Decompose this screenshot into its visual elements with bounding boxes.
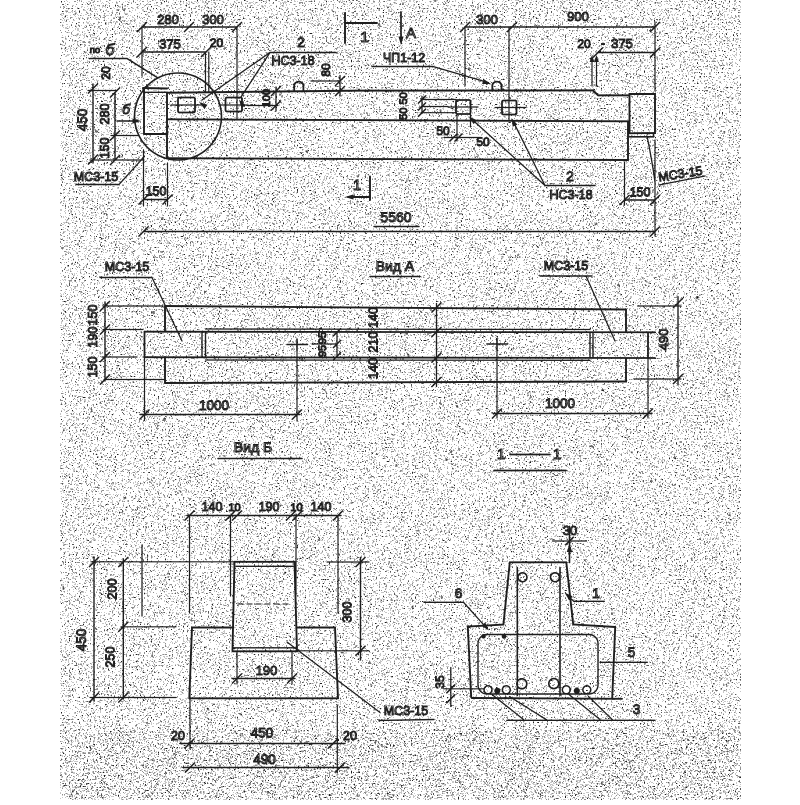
- svg-text:450: 450: [74, 629, 89, 652]
- svg-text:1: 1: [353, 177, 361, 194]
- svg-text:10: 10: [228, 502, 240, 514]
- svg-text:140: 140: [367, 358, 381, 379]
- svg-text:10: 10: [290, 502, 302, 514]
- svg-text:190: 190: [86, 327, 100, 348]
- svg-text:150: 150: [98, 138, 112, 159]
- svg-text:6: 6: [455, 586, 463, 601]
- svg-text:300: 300: [476, 12, 498, 27]
- svg-text:Вид А: Вид А: [376, 258, 415, 274]
- svg-text:50: 50: [436, 124, 450, 138]
- svg-text:1000: 1000: [199, 398, 229, 413]
- svg-text:1: 1: [360, 29, 368, 46]
- svg-text:150: 150: [630, 186, 651, 200]
- svg-text:250: 250: [104, 647, 118, 668]
- svg-text:80: 80: [319, 63, 333, 77]
- svg-text:б: б: [122, 101, 131, 117]
- svg-text:3: 3: [633, 702, 641, 717]
- svg-text:375: 375: [159, 37, 181, 52]
- svg-text:95: 95: [317, 332, 329, 344]
- svg-text:280: 280: [157, 12, 179, 27]
- svg-text:490: 490: [656, 329, 671, 351]
- svg-text:1000: 1000: [545, 396, 575, 411]
- svg-text:20: 20: [343, 729, 357, 743]
- svg-text:5560: 5560: [380, 209, 411, 225]
- svg-text:1: 1: [553, 446, 561, 463]
- svg-text:2: 2: [566, 168, 574, 184]
- svg-text:МС3-15: МС3-15: [544, 259, 589, 273]
- svg-text:5: 5: [628, 645, 636, 660]
- svg-text:450: 450: [75, 109, 90, 132]
- svg-text:150: 150: [146, 185, 167, 199]
- svg-text:100: 100: [261, 89, 273, 107]
- svg-text:450: 450: [251, 726, 274, 741]
- svg-text:МС3-15: МС3-15: [105, 260, 150, 274]
- svg-text:20: 20: [577, 37, 591, 51]
- svg-text:50: 50: [476, 135, 490, 149]
- svg-text:-: -: [601, 36, 605, 50]
- svg-text:900: 900: [567, 9, 589, 24]
- svg-text:А: А: [406, 25, 416, 42]
- svg-text:НС3-18: НС3-18: [271, 54, 314, 68]
- svg-text:95: 95: [317, 345, 329, 357]
- svg-text:375: 375: [611, 36, 633, 51]
- svg-text:210: 210: [367, 332, 381, 353]
- svg-text:140: 140: [367, 307, 381, 328]
- svg-text:490: 490: [253, 752, 276, 767]
- svg-text:200: 200: [106, 579, 120, 600]
- svg-text:300: 300: [202, 12, 224, 27]
- svg-text:МС3-15: МС3-15: [384, 704, 429, 718]
- svg-text:20: 20: [210, 36, 224, 50]
- svg-text:НС3-18: НС3-18: [549, 188, 592, 202]
- svg-text:35: 35: [433, 675, 447, 689]
- svg-text:2: 2: [297, 34, 305, 50]
- svg-text:20: 20: [99, 66, 113, 80]
- svg-text:б: б: [106, 42, 116, 59]
- svg-text:по: по: [90, 45, 100, 56]
- svg-text:280: 280: [98, 104, 112, 125]
- svg-text:140: 140: [202, 500, 223, 514]
- svg-text:190: 190: [259, 500, 280, 514]
- svg-text:300: 300: [341, 602, 355, 623]
- svg-text:150: 150: [86, 357, 100, 378]
- svg-text:1: 1: [592, 586, 600, 601]
- svg-text:50 50: 50 50: [398, 92, 410, 120]
- svg-text:МС3-15: МС3-15: [74, 170, 119, 184]
- svg-text:190: 190: [256, 663, 278, 678]
- svg-text:20: 20: [171, 729, 185, 743]
- svg-text:140: 140: [311, 500, 332, 514]
- svg-text:1: 1: [497, 446, 505, 463]
- svg-text:ЧП1-12: ЧП1-12: [383, 51, 425, 65]
- svg-text:150: 150: [86, 305, 100, 326]
- svg-text:Вид Б: Вид Б: [234, 439, 272, 455]
